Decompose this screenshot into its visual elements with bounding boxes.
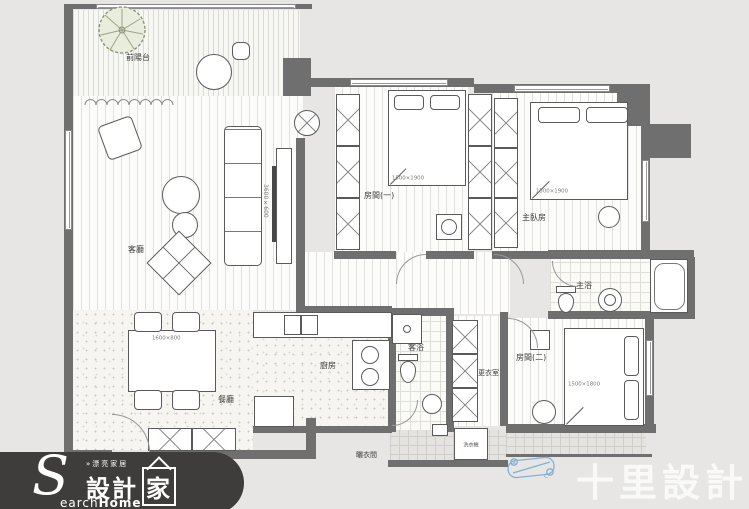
wall-segment (687, 257, 695, 315)
room1-bed-dim: 1500×1900 (392, 176, 424, 181)
floor-plan: 前陽台 3600×600 客廳 1500×1900 房間(一) (0, 0, 749, 509)
balcony-table (196, 54, 232, 90)
tv-cabinet-dim: 3600×600 (262, 184, 268, 218)
bathtub-inner (654, 263, 685, 310)
searchhome-en-b: Home (99, 496, 142, 509)
toilet-tank (398, 354, 418, 361)
dining-chair (134, 312, 162, 332)
room-label-closet: 更衣室 (478, 370, 499, 377)
wardrobe (468, 198, 492, 250)
wardrobe (468, 94, 492, 146)
scooter-mark-c: C (544, 473, 548, 480)
storage-cabinet (192, 428, 236, 451)
searchhome-house-glyph: 家 (142, 467, 176, 506)
room-label-laundry: 曬衣間 (356, 452, 377, 459)
window (646, 340, 653, 396)
wardrobe (494, 148, 518, 198)
sink (422, 394, 442, 414)
wall-segment (649, 124, 691, 158)
wardrobe (494, 98, 518, 148)
tv-cabinet (276, 148, 292, 264)
wardrobe (494, 198, 518, 248)
sink-drain-icon (604, 294, 616, 306)
room-label-master-bath: 主浴 (576, 282, 592, 290)
room-label-master: 主臥房 (522, 214, 546, 222)
pillow (586, 107, 628, 123)
kitchen-sink (284, 315, 301, 335)
kitchen-counter (253, 312, 392, 338)
master-bed-dim: 1500×1900 (536, 189, 568, 194)
toilet-tank (556, 286, 576, 293)
wardrobe (336, 198, 360, 250)
laundry-sink (432, 424, 448, 436)
kitchen-sink (301, 315, 318, 335)
wall-segment (334, 251, 396, 259)
wall-segment (500, 312, 508, 426)
dining-chair (172, 390, 200, 410)
tree-icon (94, 2, 150, 58)
searchhome-logo: »漂亮家居 S 設計家 earchHome (0, 452, 244, 509)
stool (532, 400, 556, 424)
washer-label: 洗衣機 (463, 440, 478, 448)
pillow (430, 95, 460, 110)
wardrobe (336, 146, 360, 198)
wall-segment (548, 250, 694, 259)
wardrobe (468, 146, 492, 198)
curtain-icon (84, 92, 176, 104)
wardrobe (452, 354, 478, 388)
lower-cabinet (254, 396, 294, 427)
sofa (224, 126, 262, 266)
window (350, 79, 448, 86)
room2-bed-dim: 1500×1800 (568, 382, 600, 387)
wall-segment (283, 58, 311, 96)
wardrobe (336, 94, 360, 146)
wardrobe (452, 388, 478, 422)
window (514, 85, 610, 92)
lamp-icon (441, 219, 457, 235)
balcony-chair (232, 42, 250, 60)
shower-drain-icon (403, 325, 411, 333)
wall-segment (388, 460, 508, 467)
wall-segment (296, 138, 305, 310)
searchhome-en-a: earch (60, 496, 99, 509)
room-label-dining: 餐廳 (218, 396, 234, 404)
room-label-living: 客廳 (128, 246, 144, 254)
wall-segment (426, 251, 474, 259)
wall-segment (253, 426, 392, 433)
scooter-icon: A C (504, 452, 560, 486)
washing-machine: 洗衣機 (454, 428, 488, 460)
dining-table-dim: 1600×800 (152, 336, 181, 341)
dining-chair (172, 312, 200, 332)
wall-segment (306, 418, 316, 459)
burner-icon (361, 368, 379, 386)
pillow (624, 336, 639, 376)
pillow (538, 107, 580, 123)
room-label-room1: 房間(一) (364, 192, 394, 200)
side-table-large (162, 176, 200, 214)
tv (272, 166, 276, 242)
wall-segment (64, 6, 73, 458)
room-label-guest-bath: 客浴 (408, 344, 424, 352)
window (642, 160, 649, 222)
studio-watermark: 十里設計 (576, 452, 748, 507)
stool (598, 206, 620, 228)
wardrobe (452, 320, 478, 354)
pillow (624, 380, 639, 420)
storage-cabinet (148, 428, 192, 451)
burner-icon (361, 346, 379, 364)
room-label-kitchen: 廚房 (320, 362, 336, 370)
window (65, 130, 72, 230)
dining-chair (134, 390, 162, 410)
laundry-floor (390, 430, 506, 464)
room-label-balcony: 前陽台 (126, 54, 150, 62)
room-label-room2: 房間(二) (516, 354, 546, 362)
pillow (394, 95, 424, 110)
door-symbol-icon (294, 110, 320, 136)
searchhome-en: earchHome (60, 496, 142, 509)
